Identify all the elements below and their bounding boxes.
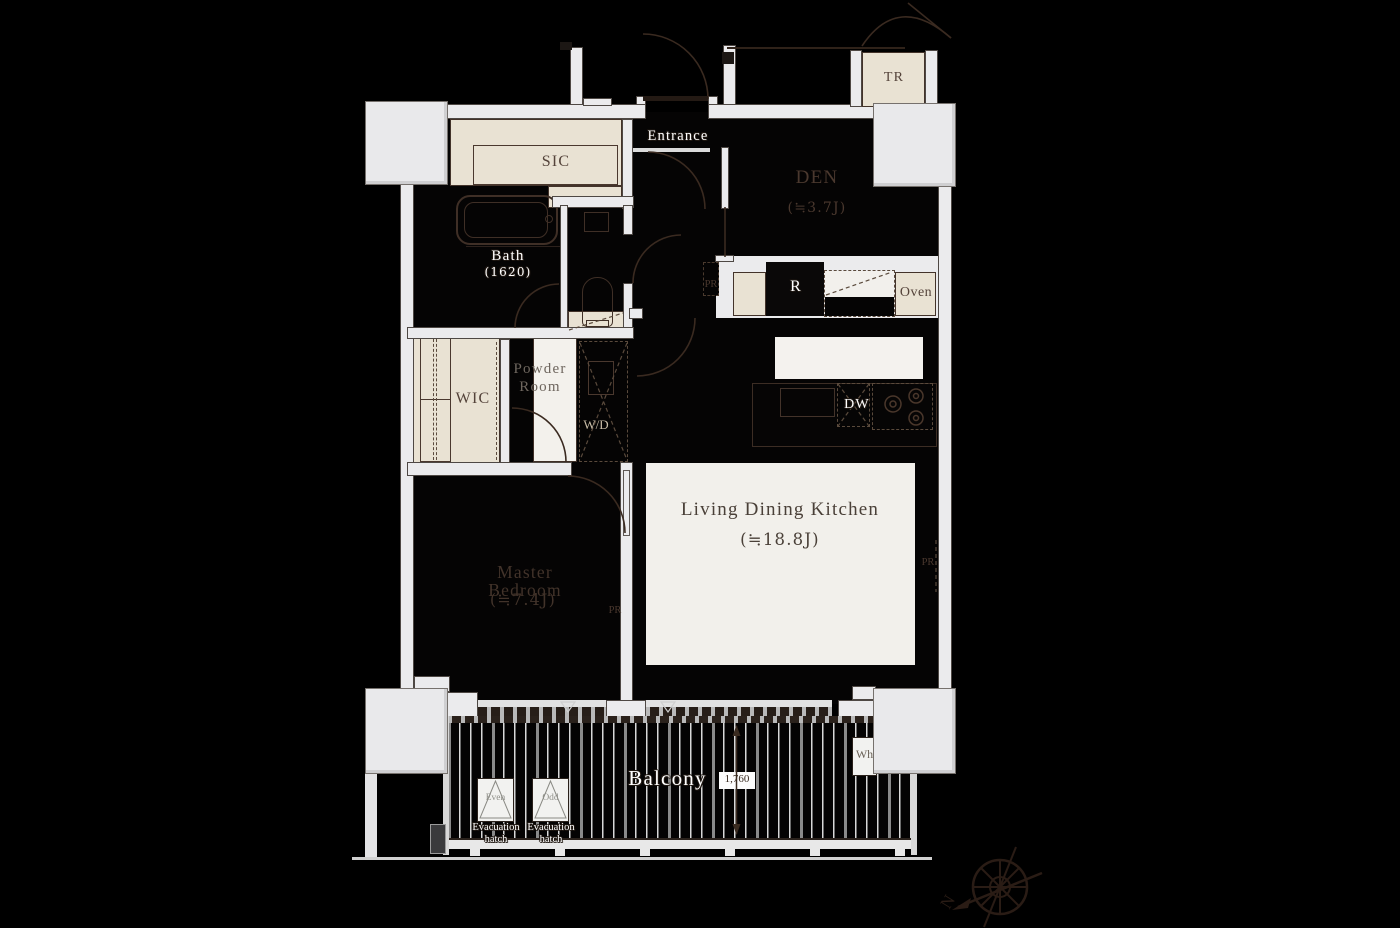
entrance-label: Entrance — [640, 129, 716, 144]
stove-outline — [872, 383, 933, 430]
compass-north-label: N — [936, 892, 959, 912]
balcony-side — [911, 773, 917, 855]
powder-room-label-1: Powder — [512, 362, 568, 378]
pillar — [873, 103, 956, 187]
bathtub-drain — [545, 215, 553, 223]
dishwasher-label: DW — [841, 398, 873, 413]
balcony-edge-tabs — [470, 849, 911, 856]
hatch-odd-caption-1: Evacuation — [521, 822, 581, 833]
bath-step-line — [466, 246, 560, 247]
wall-stub — [715, 255, 734, 262]
den-sliding-door — [721, 147, 729, 209]
den-size: (≒3.7J) — [782, 201, 852, 216]
ldk-size: (≒18.8J) — [740, 531, 820, 548]
powder-vanity-counter — [533, 338, 577, 462]
balcony-divider-wall — [365, 772, 377, 860]
wall — [850, 50, 862, 107]
washer-outline — [588, 361, 614, 395]
wall — [560, 205, 568, 333]
bedroom-door-leaf — [623, 470, 630, 536]
water-heater-label: Wh — [852, 748, 877, 761]
powder-room-label-2: Room — [514, 380, 566, 396]
door-jamb — [708, 96, 718, 105]
entrance-door-leaf — [643, 96, 708, 101]
wall — [407, 462, 572, 476]
drain-box — [430, 824, 446, 854]
kitchen-cabinet — [733, 272, 766, 316]
ldk-label: Living Dining Kitchen — [670, 500, 890, 520]
hatch-even-label: Even — [479, 794, 512, 804]
counter-bottom-black — [825, 297, 894, 316]
wic-sliding-door — [496, 342, 499, 460]
laundry-label: W/D — [580, 418, 612, 432]
wall-mark — [560, 42, 572, 50]
pillar — [365, 101, 448, 185]
counter-top-white — [825, 271, 894, 297]
balcony-rail — [448, 716, 911, 723]
wall — [407, 327, 634, 339]
pipe-shaft-label: PR — [919, 557, 937, 568]
sic-label: SIC — [534, 154, 578, 171]
wall — [938, 182, 952, 696]
balcony-label: Balcony — [625, 767, 710, 789]
exterior-line — [352, 857, 932, 860]
kitchen-sink — [780, 388, 835, 417]
wall — [623, 205, 633, 235]
trunk-door-arc — [862, 17, 951, 46]
door-jamb — [636, 96, 646, 105]
window-sill — [646, 700, 832, 707]
wall-stub — [629, 308, 643, 319]
ldk-rug — [646, 463, 915, 665]
hatch-odd-caption-2: hatch — [521, 834, 581, 845]
hatch-even-caption-1: Evacuation — [466, 822, 526, 833]
wall — [925, 50, 938, 107]
entrance-door-arc — [643, 34, 708, 99]
wic-hanger-pole — [433, 339, 437, 460]
wall — [500, 339, 510, 465]
bathtub-inner — [464, 202, 548, 238]
hatch-odd-label: Odd — [534, 794, 567, 804]
pipe-shaft-label: PR — [702, 279, 720, 290]
bath-size: (1620) — [482, 266, 534, 279]
trunk-room-label: TR — [877, 71, 911, 86]
laundry-space — [579, 341, 628, 462]
toilet-tank — [584, 212, 609, 232]
pillar — [365, 688, 448, 774]
refrigerator-label: R — [787, 279, 805, 296]
pipe-shaft-label: PR — [606, 605, 624, 616]
compass-icon: N — [936, 847, 1042, 927]
bath-label: Bath — [484, 249, 532, 265]
master-bedroom-size: (≒7.4J) — [487, 592, 559, 609]
pillar — [873, 688, 956, 774]
wall-stub — [570, 47, 583, 105]
hatch-even-caption-2: hatch — [466, 834, 526, 845]
floor-plan: N Entrance SIC Bath (1620) DEN (≒3.7J) T… — [0, 0, 1400, 928]
trunk-door-leaf — [908, 3, 951, 38]
oven-label: Oven — [897, 286, 935, 301]
wall-mark — [722, 52, 734, 64]
kitchen-countertop — [775, 337, 923, 379]
balcony-dimension-label: 1,760 — [719, 774, 755, 786]
wall-stub — [583, 98, 612, 106]
wall — [400, 104, 414, 696]
kitchen-counter-dashed — [824, 270, 895, 317]
den-label: DEN — [792, 168, 842, 188]
wic-label: WIC — [452, 391, 494, 408]
entrance-step — [633, 148, 710, 152]
